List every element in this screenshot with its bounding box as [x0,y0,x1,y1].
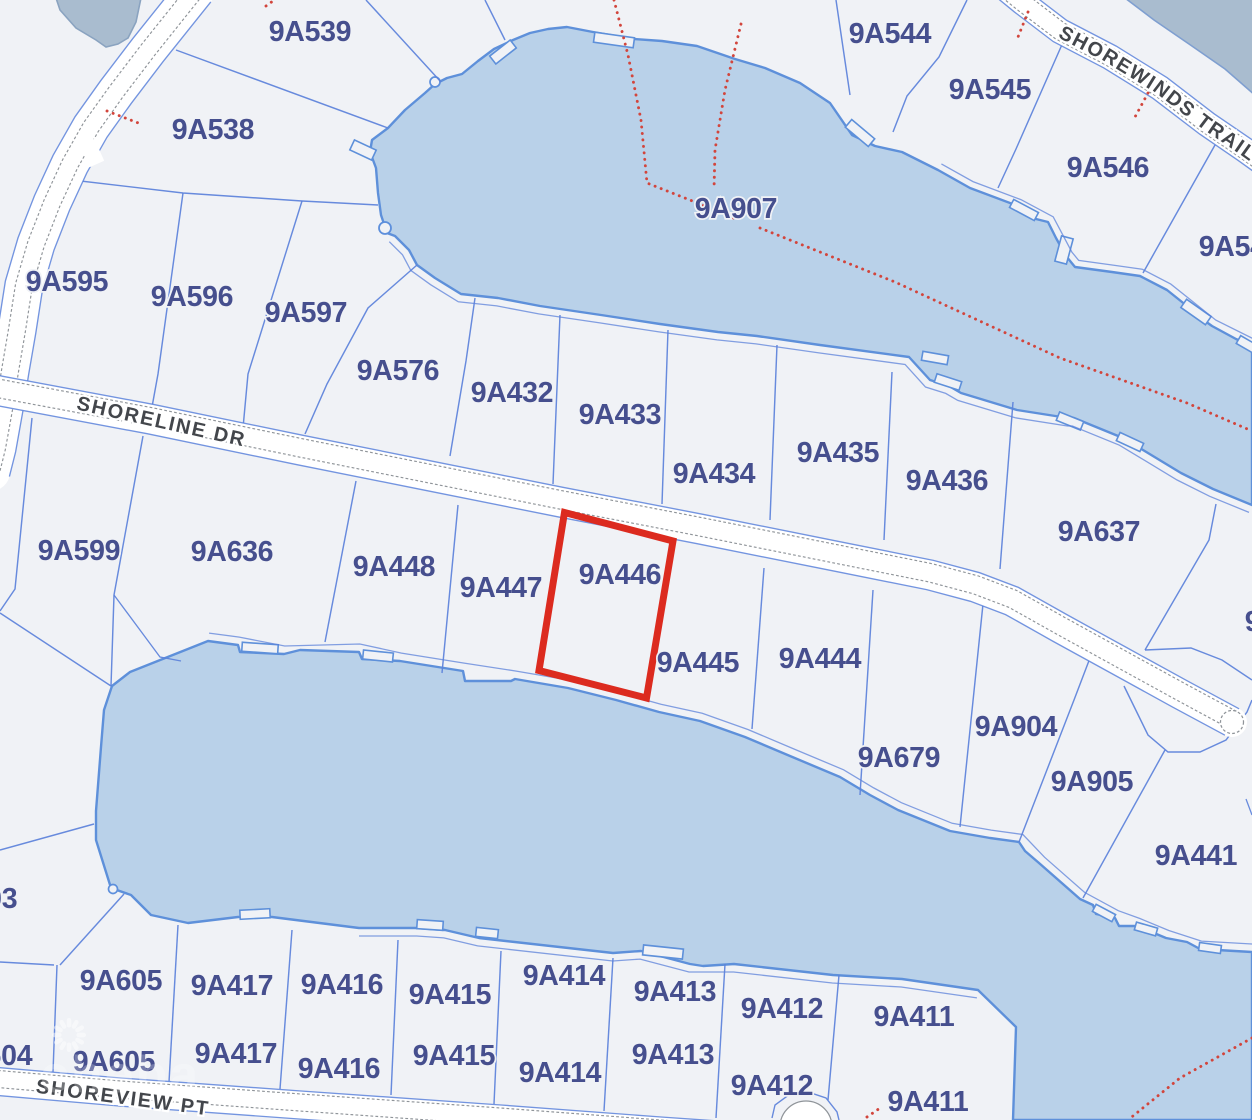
svg-text:9A415: 9A415 [409,979,492,1011]
svg-text:cheba: cheba [40,1046,200,1104]
svg-text:9A546: 9A546 [1067,152,1149,184]
svg-text:9A448: 9A448 [353,551,435,583]
svg-text:9A433: 9A433 [579,399,661,431]
svg-text:9A446: 9A446 [579,559,661,591]
svg-text:9A435: 9A435 [797,437,880,469]
svg-text:9A907: 9A907 [695,193,777,225]
svg-text:9A544: 9A544 [849,18,932,50]
svg-text:9A411: 9A411 [874,1001,955,1033]
svg-text:9A411: 9A411 [888,1086,969,1118]
svg-text:9A416: 9A416 [301,969,383,1001]
svg-text:9A905: 9A905 [1051,766,1134,798]
svg-text:9A547: 9A547 [1199,231,1252,263]
svg-text:9A416: 9A416 [298,1053,380,1085]
svg-text:9A412: 9A412 [741,993,823,1025]
svg-text:9A413: 9A413 [634,976,716,1008]
svg-text:9A442: 9A442 [1245,606,1252,638]
svg-text:9A414: 9A414 [523,960,606,992]
svg-text:9A441: 9A441 [1155,840,1238,872]
svg-text:9A538: 9A538 [172,114,254,146]
svg-text:9A413: 9A413 [632,1039,714,1071]
svg-text:9A447: 9A447 [460,572,542,604]
svg-text:9A445: 9A445 [657,647,740,679]
svg-text:9A605: 9A605 [80,965,163,997]
svg-text:9A904: 9A904 [975,711,1058,743]
svg-text:9A436: 9A436 [906,465,988,497]
svg-text:9A637: 9A637 [1058,516,1140,548]
svg-text:9A576: 9A576 [357,355,439,387]
svg-text:9A679: 9A679 [858,742,940,774]
svg-text:9A636: 9A636 [191,536,273,568]
svg-text:9A432: 9A432 [471,377,553,409]
svg-text:9A539: 9A539 [269,16,351,48]
svg-text:9A417: 9A417 [191,970,273,1002]
svg-text:9A444: 9A444 [779,643,862,675]
svg-text:9A599: 9A599 [38,535,120,567]
svg-text:9A597: 9A597 [265,297,347,329]
svg-text:9A417: 9A417 [195,1038,277,1070]
svg-text:9A604: 9A604 [0,1040,33,1072]
svg-text:9A595: 9A595 [26,266,109,298]
svg-text:9A596: 9A596 [151,281,233,313]
svg-text:9A414: 9A414 [519,1057,602,1089]
svg-text:9A545: 9A545 [949,74,1032,106]
svg-text:9A415: 9A415 [413,1040,496,1072]
svg-text:9A412: 9A412 [731,1070,813,1102]
svg-text:9A603: 9A603 [0,883,17,915]
svg-text:9A434: 9A434 [673,458,756,490]
